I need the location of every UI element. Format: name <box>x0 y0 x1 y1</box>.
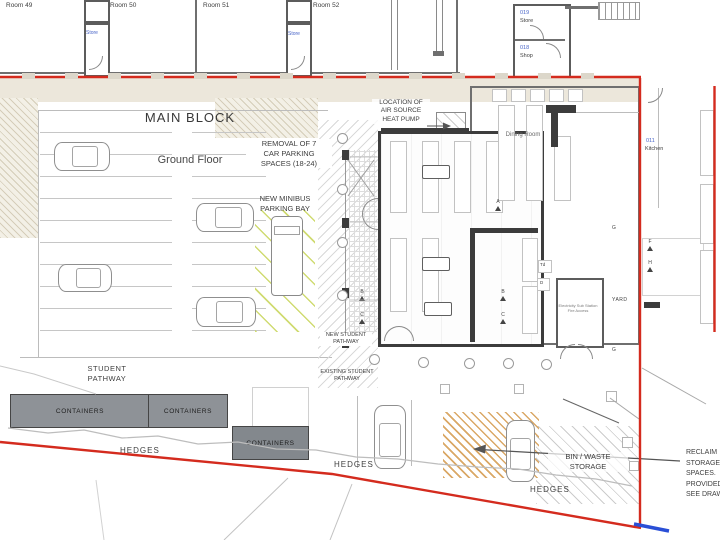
shop-018-label: Shop <box>520 53 533 60</box>
parked-car-vertical <box>374 405 406 469</box>
section-marker-a: A <box>492 200 504 211</box>
bolt-fixture <box>644 302 660 308</box>
dining-table-long <box>526 105 543 201</box>
fence-line <box>96 480 104 540</box>
existing-right-wall <box>638 86 640 345</box>
column-foot <box>433 51 444 56</box>
minibus <box>271 216 303 296</box>
store-019-label: Store <box>520 18 533 25</box>
room-50-label: Room 50 <box>110 2 136 10</box>
grid-bubble <box>337 133 348 144</box>
hedges-label-3: HEDGES <box>530 485 570 495</box>
dining-chair <box>549 89 564 102</box>
containers-label: CONTAINERS <box>164 408 212 415</box>
containers-box-3: CONTAINERS <box>232 426 309 460</box>
kitchen-label: Kitchen <box>645 146 663 153</box>
grid-bubble <box>337 237 348 248</box>
page-title: MAIN BLOCK Ground Floor <box>120 87 260 170</box>
parked-car-vertical <box>506 420 535 482</box>
fence-line <box>224 478 288 540</box>
unit-d-label: D <box>540 280 543 286</box>
section-marker-b: B <box>497 290 509 301</box>
table <box>424 302 452 316</box>
containers-box-1: CONTAINERS <box>10 394 150 428</box>
dining-left-wall <box>470 86 472 132</box>
interior-wall-h <box>472 228 538 233</box>
room-49-label: Room 49 <box>6 2 32 10</box>
walkway-grid <box>349 150 377 332</box>
table <box>422 165 450 179</box>
servery-counter <box>522 238 538 282</box>
grid-bubble <box>541 359 552 370</box>
containers-label: CONTAINERS <box>56 408 104 415</box>
bench <box>422 238 439 312</box>
grid-bubble <box>337 184 348 195</box>
room-52-label: Room 52 <box>313 2 339 10</box>
section-marker-f: F <box>644 240 656 251</box>
yard-fence-line <box>642 368 706 404</box>
section-marker-g1: G <box>608 226 620 231</box>
kitchen-counter <box>700 110 714 176</box>
kitchen-counter <box>700 250 714 324</box>
containers-box-2: CONTAINERS <box>148 394 228 428</box>
grid-bubble <box>418 357 429 368</box>
carpark-bottom-line <box>20 357 332 358</box>
dining-top-wall <box>470 86 640 88</box>
grid-bubble <box>369 354 380 365</box>
dining-room-label: Dining Room <box>498 132 548 140</box>
shop-018-code: 018 <box>520 45 529 52</box>
carpark-left-line <box>38 110 39 358</box>
dining-chair <box>530 89 545 102</box>
column-pair <box>391 0 398 70</box>
grid-square <box>629 461 639 471</box>
containers-label: CONTAINERS <box>246 440 294 447</box>
fence-outline <box>252 387 309 429</box>
bench <box>454 141 471 213</box>
section-marker-c: C <box>497 313 509 324</box>
door-arc <box>648 88 663 103</box>
section-marker-b2: B <box>356 290 368 301</box>
store-019-code: 019 <box>520 10 529 17</box>
grid-square <box>622 437 633 448</box>
title-main: MAIN BLOCK <box>145 110 235 125</box>
grid-bubble <box>464 358 475 369</box>
bench <box>390 141 407 213</box>
hedges-label-1: HEDGES <box>120 446 160 456</box>
extension-top-wall <box>381 128 469 134</box>
section-marker-g2: G <box>608 348 620 353</box>
unit-td-label: Td <box>540 262 545 268</box>
room-divider-wall <box>195 0 197 74</box>
canopy-line <box>345 150 346 348</box>
removal-parking-note: REMOVAL OF 7 CAR PARKING SPACES (18-24) <box>246 139 332 168</box>
column-beam <box>546 105 576 113</box>
section-marker-c2: C <box>356 313 368 324</box>
parked-car <box>196 203 254 232</box>
fence-line <box>330 484 352 540</box>
existing-student-pathway-label: EXISTING STUDENT PATHWAY <box>312 369 382 383</box>
grid-square <box>440 384 450 394</box>
grid-square <box>606 391 617 402</box>
kitchen-counter <box>700 184 714 244</box>
column-beam <box>551 113 558 147</box>
student-pathway-label: STUDENT PATHWAY <box>62 364 152 384</box>
store-closet-b-label: Store <box>288 31 300 38</box>
bay-line <box>357 396 358 468</box>
reclaim-note: RECLAIM STORAGE SPACES. PROVIDED SEE DRA… <box>686 448 720 501</box>
heat-pump-note: LOCATION OF AIR SOURCE HEAT PUMP <box>372 99 430 124</box>
column-pair <box>436 0 443 52</box>
new-minibus-note: NEW MINIBUS PARKING BAY <box>250 194 320 214</box>
left-edge-hatch-strip <box>0 98 38 238</box>
top-right-wall <box>565 6 598 9</box>
section-marker-h: H <box>644 261 656 272</box>
store-shop-divider <box>515 39 565 41</box>
kitchen-code: 011 <box>646 138 655 145</box>
yard-label: YARD <box>612 297 628 304</box>
store-closet-b-upper <box>286 0 312 23</box>
interior-wall-v <box>470 228 475 342</box>
store-closet-a-upper <box>84 0 110 23</box>
boundary-opening-ticks <box>22 73 618 79</box>
new-student-pathway-note: NEW STUDENT PATHWAY <box>320 332 372 346</box>
table <box>422 257 450 271</box>
dining-tie-line <box>576 112 640 113</box>
stairs-top-right <box>598 2 640 20</box>
boundary-blue-segment <box>634 524 669 531</box>
room-51-label: Room 51 <box>203 2 229 10</box>
title-sub: Ground Floor <box>158 154 223 166</box>
canopy-post <box>342 150 349 160</box>
servery-counter <box>522 286 538 334</box>
dining-chair <box>511 89 526 102</box>
dining-chair <box>492 89 507 102</box>
reclaim-leader <box>563 399 619 423</box>
site-plan: Room 49 Room 50 Room 51 Room 52 Store St… <box>0 0 720 540</box>
grid-square <box>514 384 524 394</box>
substation-label: Electricity Sub Station Fire Access <box>558 303 598 313</box>
bin-waste-label: BIN / WASTE STORAGE <box>548 452 628 472</box>
bay-line <box>411 400 412 466</box>
hedges-label-2: HEDGES <box>334 460 374 470</box>
parked-car <box>54 142 110 171</box>
grid-bubble <box>337 290 348 301</box>
servery-unit <box>537 278 550 291</box>
parked-car <box>196 297 256 327</box>
canopy-post <box>342 218 349 228</box>
room-divider-wall <box>456 0 458 74</box>
parked-car <box>58 264 112 292</box>
dining-chair <box>568 89 583 102</box>
grid-bubble <box>503 358 514 369</box>
store-closet-a-label: Store <box>86 30 98 37</box>
dining-table-long <box>498 105 515 201</box>
bench <box>390 238 407 312</box>
